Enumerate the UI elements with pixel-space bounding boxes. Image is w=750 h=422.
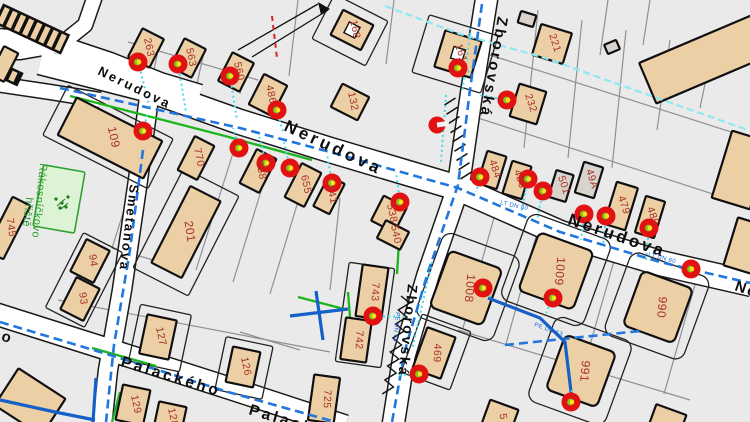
building-number-label: 1009: [552, 256, 568, 286]
hydrant-marker[interactable]: [134, 122, 153, 141]
hydrant-center-yellow: [177, 62, 182, 67]
hydrant-center-yellow: [570, 400, 575, 405]
building-number-label: 469: [431, 343, 444, 362]
playground-icon: [66, 195, 69, 198]
hydrant-center-yellow: [276, 108, 281, 113]
hydrant-center-yellow: [399, 200, 404, 205]
building-number-label: 991: [577, 360, 593, 383]
hydrant-center-yellow: [229, 74, 234, 79]
hydrant-marker[interactable]: [281, 159, 300, 178]
hydrant-center-yellow: [506, 98, 511, 103]
hydrant-marker[interactable]: [544, 289, 563, 308]
hydrant-center-yellow: [457, 66, 462, 71]
gis-map-viewport[interactable]: 2635635604861091321681612212327457706586…: [0, 0, 750, 422]
hydrant-center-yellow: [142, 129, 147, 134]
hydrant-center-yellow: [542, 189, 547, 194]
building-number-label: 1008: [462, 273, 478, 303]
hydrant-center-yellow: [289, 166, 294, 171]
playground-icon: [54, 197, 57, 200]
building-number-label: 990: [654, 296, 670, 319]
building-number-label: 725: [321, 389, 334, 408]
building-number-label: 743: [369, 282, 382, 301]
hydrant-marker[interactable]: [364, 307, 383, 326]
building-number-label: 93: [76, 291, 90, 305]
map-canvas[interactable]: 2635635604861091321681612212327457706586…: [0, 0, 750, 422]
hydrant-center-yellow: [238, 146, 243, 151]
building-number-label: 742: [353, 330, 366, 349]
hydrant-center-yellow: [552, 296, 557, 301]
hydrant-center-yellow: [482, 286, 487, 291]
hydrant-marker[interactable]: [562, 393, 581, 412]
building-number-label: 94: [86, 253, 100, 267]
hydrant-center-yellow: [479, 175, 484, 180]
hydrant-marker[interactable]: [471, 168, 490, 187]
hydrant-marker[interactable]: [534, 182, 553, 201]
hydrant-center-yellow: [690, 267, 695, 272]
hydrant-marker[interactable]: [230, 139, 249, 158]
hydrant-center-yellow: [605, 214, 610, 219]
building-number-label: 201: [182, 220, 199, 243]
hydrant-marker[interactable]: [169, 55, 188, 74]
hydrant-center-yellow: [137, 60, 142, 65]
hydrant-marker[interactable]: [498, 91, 517, 110]
hydrant-center-yellow: [418, 372, 423, 377]
hydrant-marker[interactable]: [682, 260, 701, 279]
hydrant-center-yellow: [372, 314, 377, 319]
